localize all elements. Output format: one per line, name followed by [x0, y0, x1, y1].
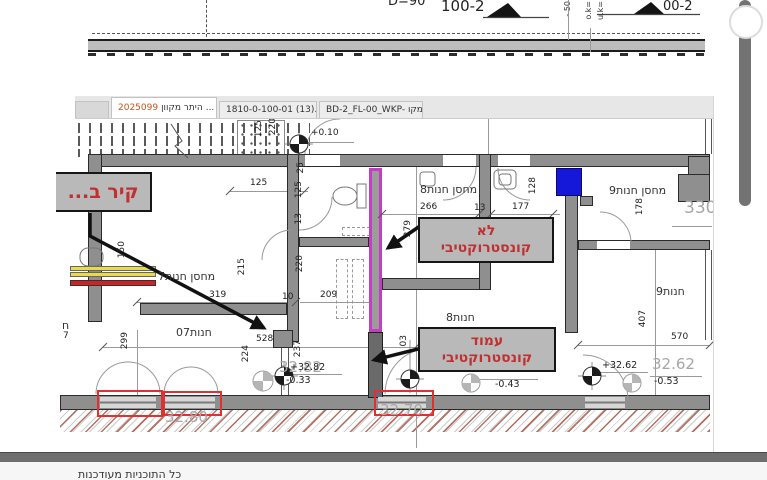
room-label: מחסן חנות9 — [609, 185, 666, 196]
annotation-text: קונסטרוקטיבי — [442, 350, 532, 367]
page-edge — [713, 96, 714, 452]
tab-doc-title: היתר מקוון — [161, 103, 203, 113]
dashed-fixture — [342, 227, 370, 236]
centerline-dashed — [92, 33, 700, 34]
room-label: מחסן חנות8 — [420, 184, 477, 195]
dim-label: 03 — [400, 335, 409, 346]
grid-line-dashed — [206, 0, 207, 37]
dim-d90: D=90 — [388, 0, 425, 9]
app-window: D=90 100-2 00-2 - 50 o.k= u.k= 2025099 ה… — [0, 0, 767, 480]
dim-label: 266 — [420, 203, 437, 212]
dim-label: 570 — [671, 333, 688, 342]
dim-label: 150 — [118, 241, 127, 258]
door-opening — [498, 155, 530, 166]
marked-opening-rect — [374, 390, 434, 416]
dim-ok: o.k= — [584, 1, 593, 20]
wall-hatch-dashes — [88, 53, 705, 56]
dim-label: 125 — [250, 179, 267, 188]
annotation-text: קיר ב... — [68, 181, 139, 204]
tab-ellipsis: ... — [206, 103, 215, 113]
marked-opening-rect — [163, 391, 222, 416]
highlight-stripe-red — [70, 280, 156, 286]
tab-label: BD-2_FL-00_WKP- מקו... — [326, 105, 423, 115]
wall-segment-top — [88, 154, 710, 167]
level-underline — [598, 372, 648, 373]
toilet-icon — [333, 187, 357, 205]
annotation-box-constructive-column: עמוד קונסטרוקטיבי — [418, 327, 556, 372]
thin-wall — [281, 348, 289, 395]
level-underline — [480, 379, 538, 380]
dim-line — [137, 330, 138, 395]
room-label-partial: ח — [62, 320, 69, 331]
highlight-stripe-yellow — [70, 266, 156, 271]
dim-label: 178 — [636, 198, 645, 215]
level-label: -0.33 — [286, 376, 311, 386]
annotation-box-not-constructive: לא קונסטרוקטיבי — [418, 217, 554, 263]
highlighted-column-blue — [556, 168, 582, 196]
annotation-text: לא — [477, 223, 496, 240]
dim-label: 177 — [512, 203, 529, 212]
marked-opening-rect — [97, 390, 163, 417]
tab-stub[interactable] — [75, 101, 109, 118]
grid-line — [655, 250, 656, 395]
dim-label: 209 — [320, 291, 337, 300]
level-underline — [308, 142, 354, 143]
wall-segment-interior — [140, 303, 287, 315]
door-opening — [597, 241, 630, 249]
status-text: כל התוכניות מעודכנות — [78, 468, 181, 480]
elevation-label: 330 — [684, 200, 716, 217]
dashed-fixture — [352, 259, 364, 319]
annotation-text: קונסטרוקטיבי — [441, 240, 531, 257]
dim-label: 215 — [238, 258, 247, 275]
room-label-partial: 7 — [63, 332, 69, 341]
dashed-fixture — [336, 259, 348, 319]
door-opening — [305, 155, 340, 166]
wall-block — [688, 156, 710, 176]
highlight-stripe-yellow — [70, 272, 156, 277]
door-sill — [585, 397, 625, 408]
dim-line — [382, 214, 560, 215]
tab-pdf-bd2[interactable]: BD-2_FL-00_WKP- מקו... — [319, 101, 423, 118]
tab-doc-number: 2025099 — [118, 103, 158, 113]
toilet-tank-icon — [357, 184, 366, 208]
dim-label: 279 — [404, 220, 413, 237]
status-bar: כל התוכניות מעודכנות — [0, 462, 767, 480]
room-label: חנות07 — [176, 327, 212, 338]
level-label: +0.10 — [311, 129, 339, 138]
dim-uk: u.k= — [596, 1, 605, 20]
wall-block — [678, 174, 710, 202]
dim-label: 407 — [639, 310, 648, 327]
wall-segment-interior — [382, 278, 490, 290]
wall-stub — [273, 330, 293, 348]
wall-segment-interior — [287, 154, 299, 342]
door-opening — [443, 155, 476, 166]
annotation-box-wall: קיר ב... — [56, 172, 152, 212]
dim-label: 128 — [529, 177, 538, 194]
level-label: -0.53 — [654, 377, 679, 387]
section-label-100-2: 100-2 — [441, 0, 485, 15]
sink-icon — [494, 170, 516, 189]
room-label: חנות9 — [656, 286, 685, 297]
tab-pdf-1810[interactable]: 1810-0-100-01 (13).pdf... — [219, 101, 317, 118]
dim-ticks — [99, 187, 714, 351]
tab-active-permit[interactable]: 2025099 היתר מקוון ... × — [111, 97, 217, 118]
level-underline — [280, 374, 342, 375]
overlay-badge — [729, 5, 763, 39]
room-label: מחסן חנות7 — [158, 271, 215, 282]
tab-label: 1810-0-100-01 (13).pdf... — [226, 105, 317, 115]
dim-label: 237 — [294, 340, 303, 357]
thin-wall — [705, 250, 712, 340]
structural-column — [368, 332, 383, 398]
window-divider-bar[interactable] — [0, 452, 767, 462]
wall-band — [88, 39, 705, 52]
level-label: -0.43 — [495, 380, 520, 390]
level-underline — [650, 376, 702, 377]
dim-label: 528 — [256, 335, 273, 344]
annotation-text: עמוד — [471, 333, 504, 350]
wall-segment-bath — [299, 237, 369, 247]
sink-icon — [420, 172, 435, 186]
stipple-hatch — [237, 120, 285, 156]
level-underline — [672, 226, 712, 227]
thin-wall — [705, 119, 712, 154]
room-label: חנות8 — [446, 312, 475, 323]
level-label: +32.82 — [290, 363, 325, 373]
highlighted-wall-magenta — [369, 168, 382, 332]
section-label-00-2: 00-2 — [663, 0, 693, 14]
dim-line — [578, 345, 710, 346]
grid-tick — [590, 28, 591, 52]
grid-line — [568, 0, 569, 40]
tab-bar: 2025099 היתר מקוון ... × 1810-0-100-01 (… — [75, 96, 713, 119]
level-label: +32.62 — [602, 361, 637, 371]
wall-stub — [580, 196, 593, 206]
dim-label: 319 — [209, 291, 226, 300]
elevation-label: 32.62 — [652, 357, 695, 372]
